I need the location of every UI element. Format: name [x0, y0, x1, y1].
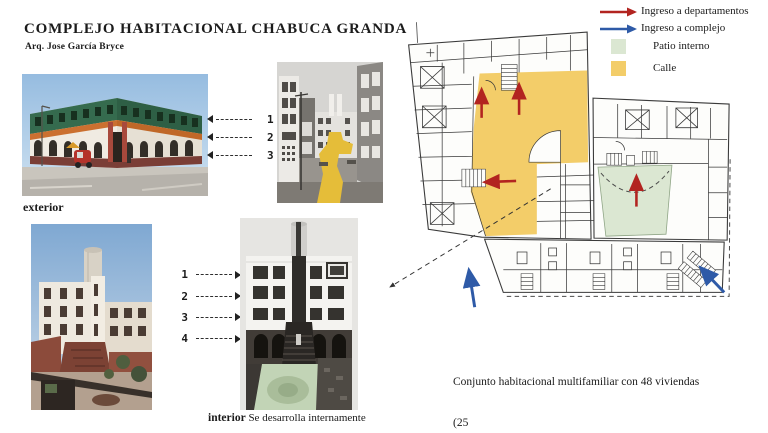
exterior-callout-3: 3 — [207, 146, 274, 164]
dashed-line — [196, 317, 232, 318]
description-line-1: Conjunto habitacional multifamiliar con … — [453, 376, 755, 390]
dashed-line — [196, 274, 232, 275]
interior-label: interior — [208, 412, 246, 424]
project-description: Conjunto habitacional multifamiliar con … — [453, 349, 755, 433]
page-subtitle: Arq. Jose García Bryce — [25, 42, 124, 52]
interior-callout-3: 3 — [178, 307, 241, 328]
dashed-line — [216, 119, 252, 120]
interior-callout-1: 1 — [178, 264, 241, 285]
callout-number: 3 — [267, 149, 274, 162]
legend-row-calle: Calle — [599, 61, 767, 76]
legend-label: Calle — [653, 62, 676, 75]
exterior-label: exterior — [23, 200, 64, 215]
callout-number: 1 — [178, 268, 188, 281]
callout-number: 1 — [267, 113, 274, 126]
photo-patio-facade — [240, 218, 358, 410]
dashed-line — [196, 338, 232, 339]
legend-row-complejo: Ingreso a complejo — [599, 22, 767, 35]
arrow-left-icon — [207, 151, 213, 159]
red-arrow-icon — [599, 7, 641, 17]
legend-label: Patio interno — [653, 40, 710, 53]
interior-callout-2: 2 — [178, 285, 241, 306]
legend-label: Ingreso a complejo — [641, 22, 725, 35]
callout-number: 2 — [178, 290, 188, 303]
photo-courtyard — [31, 224, 152, 410]
exterior-callout-2: 2 — [207, 128, 274, 146]
legend: Ingreso a departamentos Ingreso a comple… — [599, 5, 767, 83]
patio-facade-image — [240, 218, 358, 410]
dashed-line — [216, 155, 252, 156]
calle-swatch-icon — [599, 61, 653, 76]
dashed-line — [216, 137, 252, 138]
blue-arrow-1 — [470, 276, 475, 308]
legend-row-departamentos: Ingreso a departamentos — [599, 5, 767, 18]
dashed-line — [196, 296, 232, 297]
legend-label: Ingreso a departamentos — [641, 5, 749, 18]
callout-number: 4 — [178, 332, 188, 345]
exterior-callout-1: 1 — [207, 110, 274, 128]
callout-number: 2 — [267, 131, 274, 144]
photo-street-interior — [277, 62, 383, 203]
arrow-left-icon — [207, 115, 213, 123]
description-line-2: (25 — [453, 417, 755, 431]
courtyard-image — [31, 224, 152, 410]
exterior-callouts: 1 2 3 — [207, 110, 274, 164]
exterior-building-image — [22, 74, 208, 196]
slide: COMPLEJO HABITACIONAL CHABUCA GRANDA Arq… — [0, 0, 768, 433]
legend-row-patio: Patio interno — [599, 39, 767, 54]
page-title: COMPLEJO HABITACIONAL CHABUCA GRANDA — [24, 21, 407, 38]
interior-caption: interior Se desarrolla internamente — [208, 412, 366, 424]
street-interior-image — [277, 62, 383, 203]
patio-area — [598, 165, 672, 236]
patio-swatch-icon — [599, 39, 653, 54]
interior-callout-4: 4 — [178, 328, 241, 349]
blue-arrow-icon — [599, 24, 641, 34]
red-arrow-3 — [490, 181, 517, 182]
arrow-left-icon — [207, 133, 213, 141]
interior-note: Se desarrolla internamente — [246, 412, 366, 424]
callout-number: 3 — [178, 311, 188, 324]
interior-callouts: 1 2 3 4 — [178, 264, 241, 350]
photo-exterior — [22, 74, 208, 196]
